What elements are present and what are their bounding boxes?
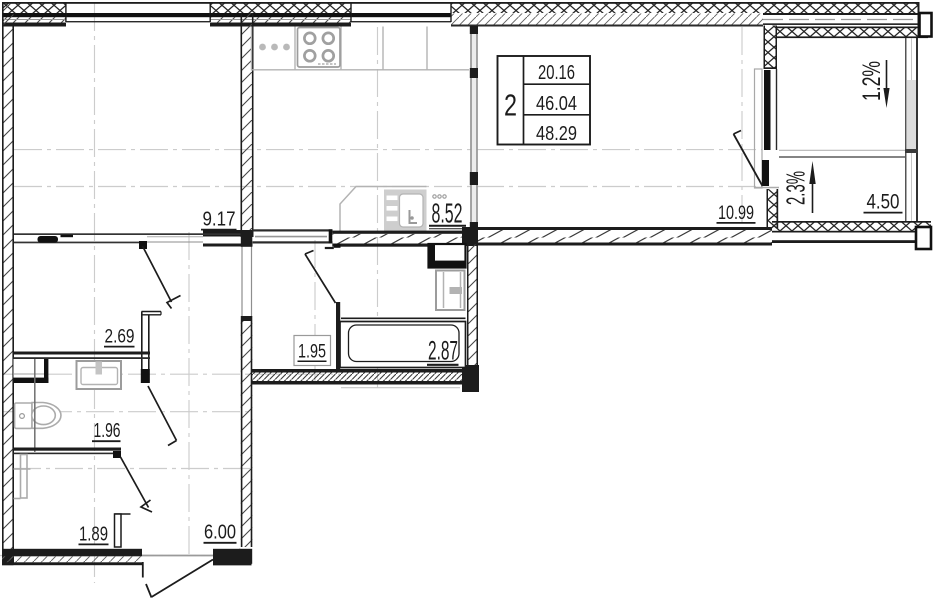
- svg-text:8.52: 8.52: [432, 198, 463, 229]
- svg-text:2: 2: [504, 89, 517, 123]
- svg-text:4.50: 4.50: [867, 190, 900, 214]
- svg-text:48.29: 48.29: [536, 122, 577, 145]
- svg-text:20.16: 20.16: [538, 61, 575, 84]
- svg-text:10.99: 10.99: [718, 203, 754, 224]
- svg-text:9.17: 9.17: [203, 209, 236, 231]
- svg-text:46.04: 46.04: [536, 92, 577, 115]
- svg-text:2.3%: 2.3%: [781, 171, 811, 205]
- svg-text:2.69: 2.69: [105, 326, 135, 348]
- svg-text:1.95: 1.95: [298, 342, 326, 363]
- svg-text:2.87: 2.87: [428, 336, 458, 366]
- svg-text:1.96: 1.96: [94, 420, 121, 442]
- svg-text:1.89: 1.89: [79, 524, 108, 546]
- svg-text:6.00: 6.00: [204, 522, 236, 544]
- svg-text:1.2%: 1.2%: [858, 61, 886, 101]
